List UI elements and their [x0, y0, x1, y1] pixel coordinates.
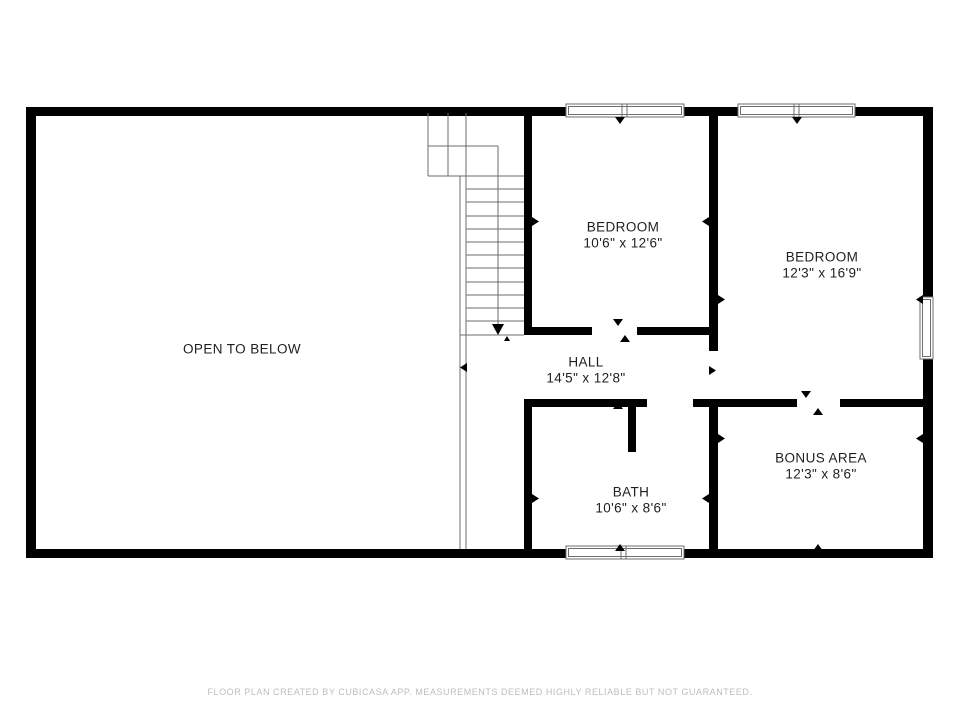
- room-name: HALL: [546, 355, 625, 371]
- floor-plan-svg: [0, 0, 960, 720]
- room-name: BEDROOM: [782, 250, 861, 266]
- wall-top-mid-segment: [682, 107, 740, 116]
- room-label-bonus-area: BONUS AREA 12'3" x 8'6": [775, 451, 867, 482]
- wall-hall-bedroom2-lower: [709, 403, 718, 549]
- room-name: OPEN TO BELOW: [183, 341, 301, 357]
- window-frame: [566, 104, 684, 117]
- wall-bedroom1-hall-right: [637, 327, 709, 335]
- room-dims: 10'6" x 8'6": [595, 500, 666, 516]
- room-name: BONUS AREA: [775, 451, 867, 467]
- stair-treads: [466, 189, 524, 321]
- window-top-bedroom1: [566, 104, 684, 117]
- room-dims: 12'3" x 8'6": [775, 466, 867, 482]
- window-frame: [920, 297, 933, 359]
- wall-right-lower: [923, 357, 933, 558]
- wall-hall-bath-top: [524, 399, 647, 407]
- wall-bottom-right-segment: [682, 549, 933, 558]
- footer-disclaimer: FLOOR PLAN CREATED BY CUBICASA APP. MEAS…: [0, 687, 960, 697]
- stair-landing-lines: [428, 113, 524, 549]
- window-bottom-bath: [566, 546, 684, 559]
- wall-bath-left: [524, 407, 532, 549]
- floor-plan-page: { "plan": { "title": "Second floor plan"…: [0, 0, 960, 720]
- wall-top-left-segment: [26, 107, 568, 116]
- wall-left: [26, 107, 36, 558]
- window-top-bedroom2: [738, 104, 855, 117]
- room-dims: 10'6" x 12'6": [583, 235, 662, 251]
- room-label-open-to-below: OPEN TO BELOW: [183, 341, 301, 357]
- wall-top-right-segment: [853, 107, 933, 116]
- exterior-walls: [26, 107, 933, 558]
- window-frame: [566, 546, 684, 559]
- room-label-bedroom-1: BEDROOM 10'6" x 12'6": [583, 220, 662, 251]
- room-label-hall: HALL 14'5" x 12'8": [546, 355, 625, 386]
- wall-hall-bedroom2-upper: [709, 116, 718, 351]
- window-frame: [738, 104, 855, 117]
- wall-bedroom2-bonus: [840, 399, 923, 407]
- wall-bottom-left-segment: [26, 549, 568, 558]
- interior-walls: [524, 116, 923, 549]
- room-name: BATH: [595, 485, 666, 501]
- staircase: [428, 113, 524, 549]
- wall-bath-bonus-top: [693, 399, 797, 407]
- room-label-bedroom-2: BEDROOM 12'3" x 16'9": [782, 250, 861, 281]
- wall-stairs-bedroom1: [524, 116, 532, 335]
- room-name: BEDROOM: [583, 220, 662, 236]
- wall-bedroom1-hall-left: [532, 327, 592, 335]
- wall-bath-stub: [628, 407, 636, 452]
- stair-direction-arrow: [492, 324, 504, 335]
- wall-right-upper: [923, 107, 933, 299]
- window-right-bedroom2: [920, 297, 933, 359]
- room-label-bath: BATH 10'6" x 8'6": [595, 485, 666, 516]
- room-dims: 14'5" x 12'8": [546, 370, 625, 386]
- room-dims: 12'3" x 16'9": [782, 265, 861, 281]
